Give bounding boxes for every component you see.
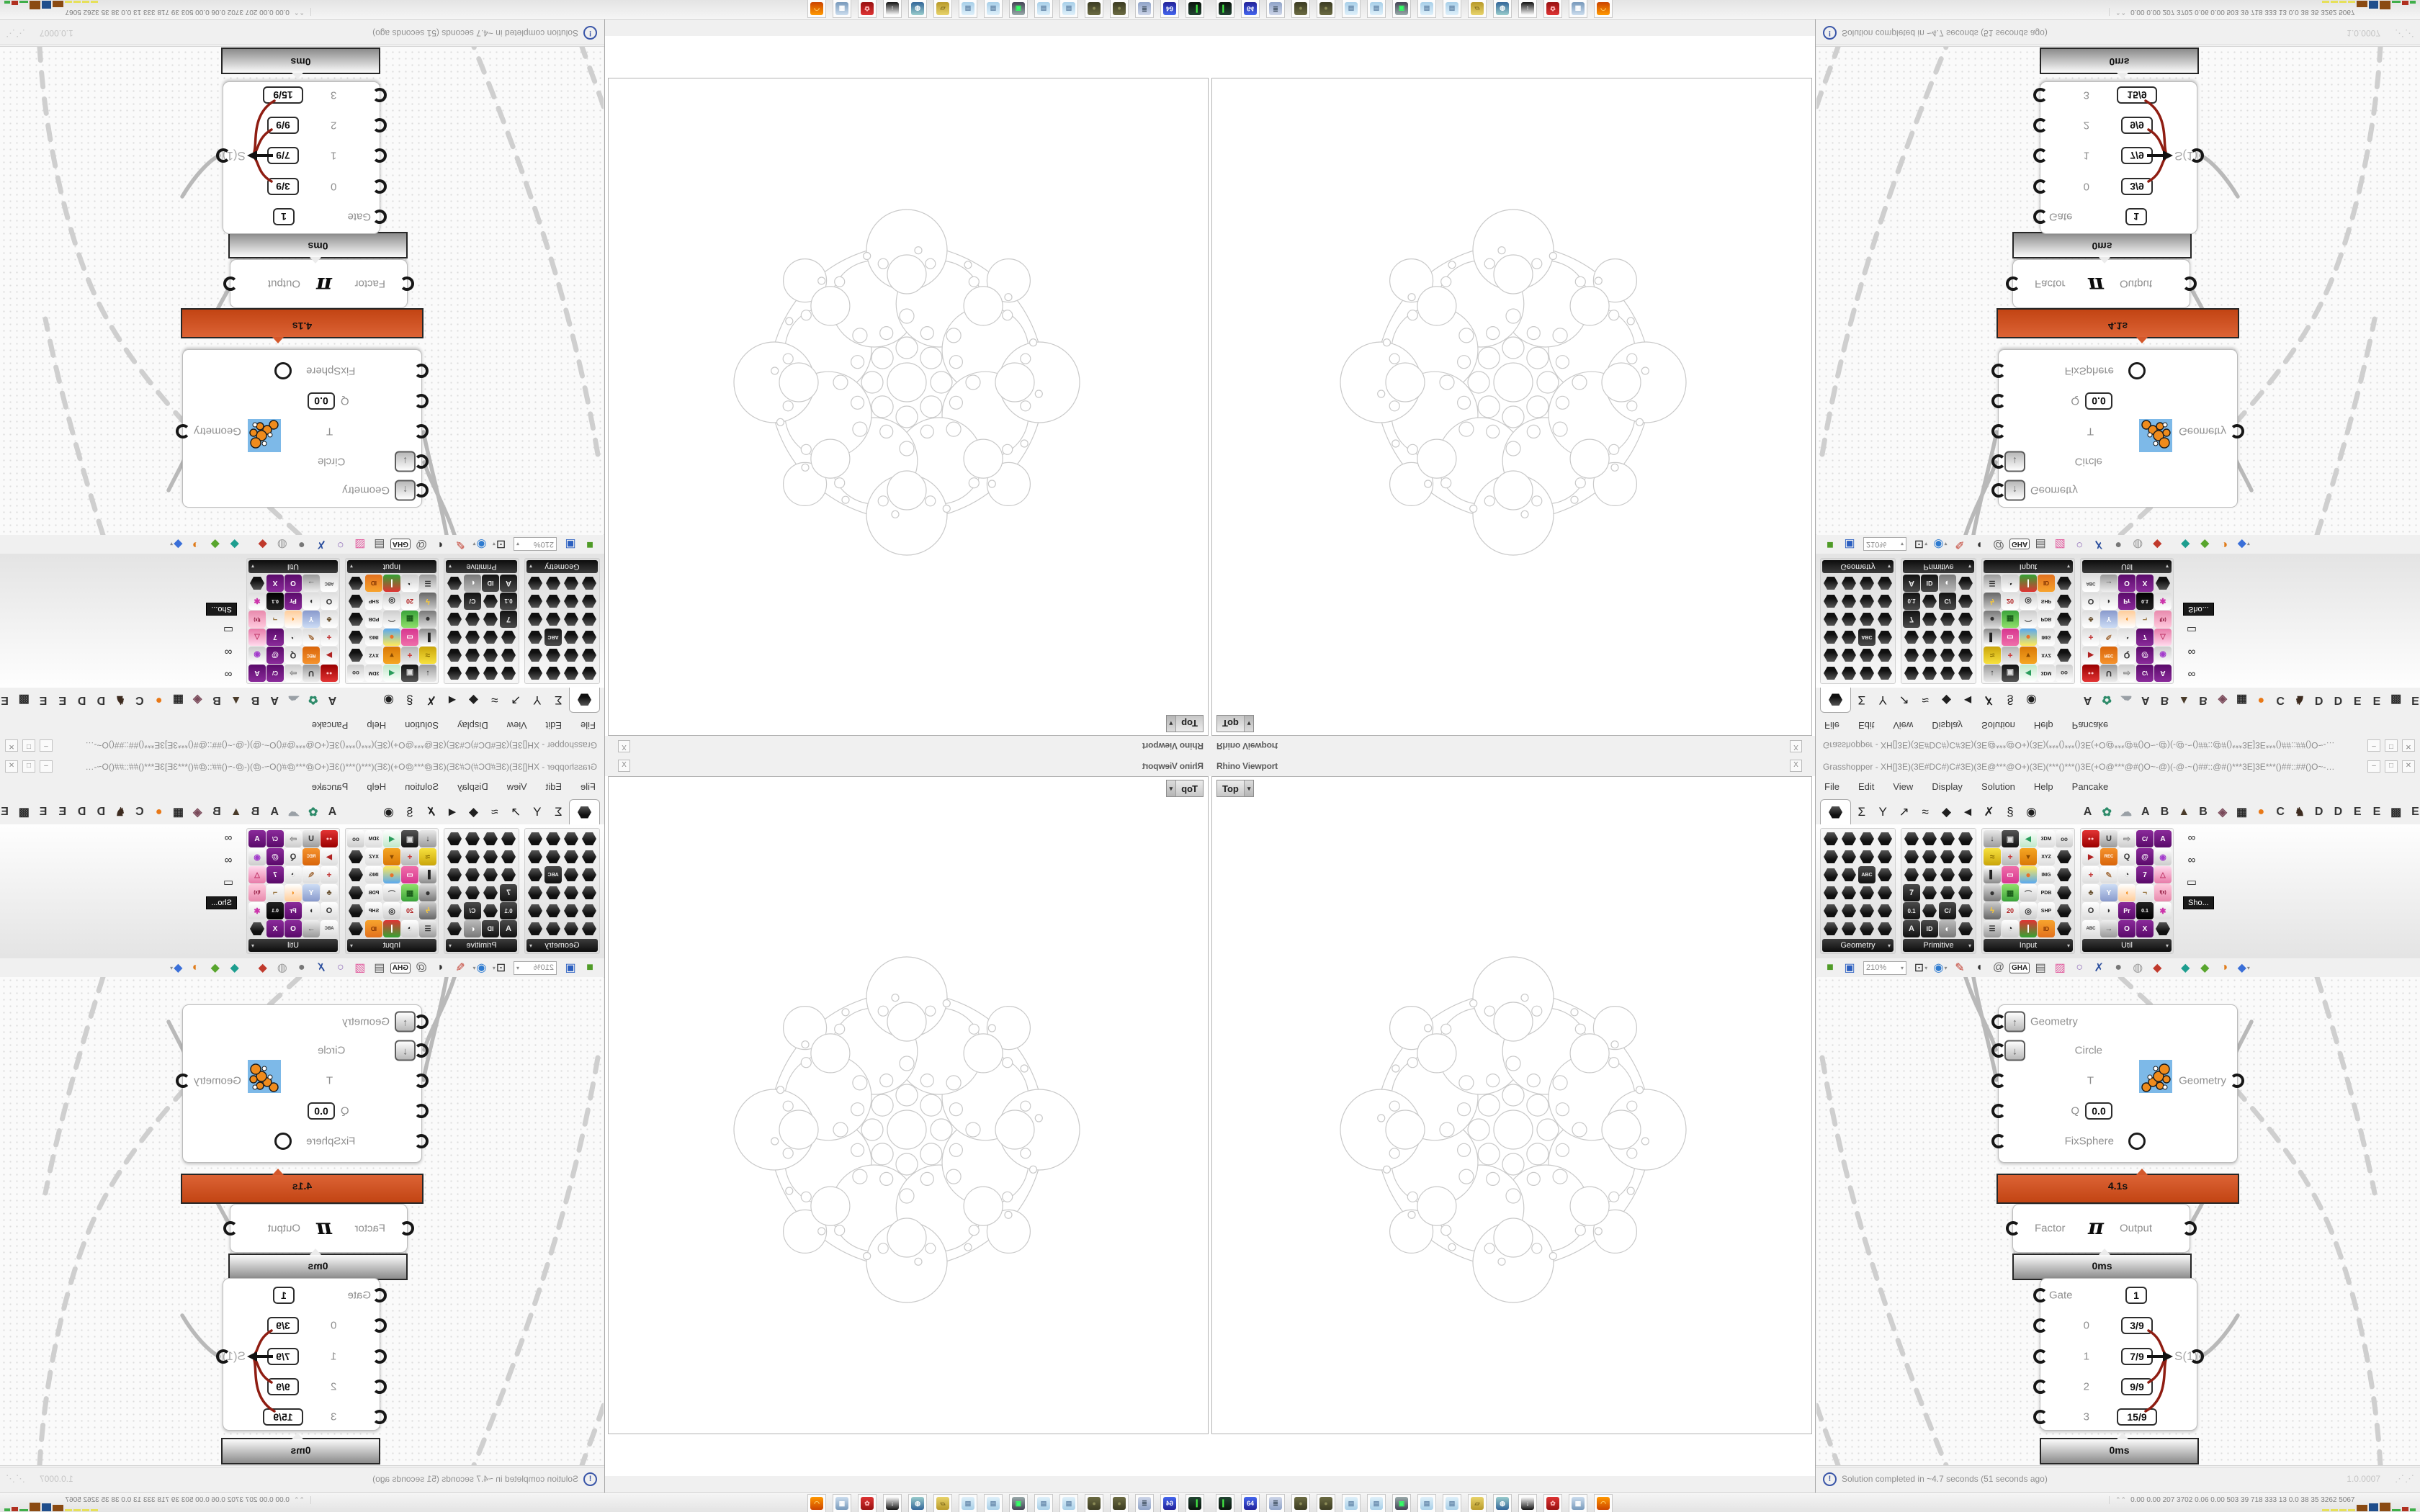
palette-icon[interactable]: + xyxy=(2002,848,2019,865)
palette-icon[interactable] xyxy=(347,611,364,628)
palette-icon[interactable]: ↓ xyxy=(1984,665,2001,682)
tab-plugin-a1[interactable]: A xyxy=(323,688,342,712)
firefox-icon[interactable]: ◠ xyxy=(1594,0,1613,18)
palette-icon[interactable]: ▦ xyxy=(2002,884,2019,901)
palette-icon[interactable]: C/ xyxy=(2136,665,2154,682)
maximize-button[interactable]: □ xyxy=(22,739,35,752)
menu-pancake[interactable]: Pancake xyxy=(2072,781,2109,792)
palette-icon[interactable] xyxy=(482,848,499,865)
palette-icon[interactable] xyxy=(563,611,580,628)
palette-icon[interactable]: △ xyxy=(2154,866,2172,883)
palette-icon[interactable]: U xyxy=(302,665,320,682)
flatten-button[interactable]: ↑ xyxy=(2004,480,2025,501)
tab-vector[interactable]: ↗ xyxy=(506,688,526,712)
zoom-extents-icon[interactable]: ⊡▾ xyxy=(490,960,508,976)
value-box[interactable]: 1 xyxy=(273,208,295,225)
tab-display[interactable]: ◉ xyxy=(378,688,399,712)
palette-group-label[interactable]: Primitive▾ xyxy=(446,939,517,952)
palette-icon[interactable] xyxy=(1858,830,1875,847)
palette-icon[interactable] xyxy=(1822,902,1839,919)
menu-view[interactable]: View xyxy=(507,781,527,792)
tab-plugin-c[interactable]: C xyxy=(2271,688,2290,712)
sphere-icon[interactable]: ● xyxy=(2110,536,2127,552)
palette-icon[interactable]: ● xyxy=(2020,866,2037,883)
palette-icon[interactable]: ◗ xyxy=(2100,593,2117,610)
palette-icon[interactable] xyxy=(1822,593,1839,610)
glasses-icon[interactable]: ∞ xyxy=(220,644,237,660)
save-file-icon[interactable]: ▣ xyxy=(562,536,579,552)
palette-icon[interactable]: 7 xyxy=(500,611,517,628)
graft-button[interactable]: ↓ xyxy=(395,1040,416,1061)
palette-icon[interactable] xyxy=(1822,575,1839,592)
palette-icon[interactable]: A xyxy=(248,830,266,847)
display-half-icon[interactable]: ◑ xyxy=(187,960,205,976)
palette-icon[interactable] xyxy=(482,593,499,610)
input-hook-gate[interactable] xyxy=(372,210,387,224)
sphere-app-icon[interactable]: ● xyxy=(1110,1494,1129,1512)
palette-icon[interactable] xyxy=(1858,665,1875,682)
palette-icon[interactable] xyxy=(1921,629,1938,646)
palette-icon[interactable]: O xyxy=(321,593,338,610)
input-hook-3[interactable] xyxy=(2033,88,2048,102)
palette-icon[interactable]: A xyxy=(500,920,517,937)
palette-icon[interactable] xyxy=(1957,830,1974,847)
palette-icon[interactable]: 0.1 xyxy=(1903,593,1920,610)
input-hook-3[interactable] xyxy=(2033,1410,2048,1424)
palette-icon[interactable]: ▣ xyxy=(401,830,418,847)
palette-icon[interactable] xyxy=(464,866,481,883)
palette-icon[interactable]: ◀ xyxy=(2020,830,2037,847)
palette-icon[interactable]: ABC xyxy=(1858,866,1875,883)
palette-icon[interactable]: ID xyxy=(482,575,499,592)
palette-icon[interactable] xyxy=(482,647,499,664)
palette-group-label[interactable]: Input▾ xyxy=(1984,560,2073,573)
output-hook-output[interactable] xyxy=(2182,276,2197,291)
maximize-button[interactable]: □ xyxy=(2385,760,2398,773)
palette-icon[interactable] xyxy=(1822,866,1839,883)
palette-icon[interactable] xyxy=(1876,665,1894,682)
palette-icon[interactable]: ▭ xyxy=(401,866,418,883)
palette-icon[interactable] xyxy=(347,920,364,937)
scroll-doc-icon[interactable]: ≣ xyxy=(1135,1494,1154,1512)
palette-icon[interactable] xyxy=(1822,647,1839,664)
palette-icon[interactable]: ▾ xyxy=(2020,647,2037,664)
resize-grip[interactable]: ⋰⋰ xyxy=(5,1473,25,1485)
palette-icon[interactable] xyxy=(347,884,364,901)
palette-icon[interactable] xyxy=(2056,611,2073,628)
palette-icon[interactable]: f(x) xyxy=(2154,611,2172,628)
tab-plugin-leaf[interactable]: ✿ xyxy=(2097,688,2117,712)
input-hook-3[interactable] xyxy=(372,88,387,102)
tab-plugin-bird[interactable]: ♞ xyxy=(2290,800,2310,824)
tab-plugin-grid[interactable]: ▦ xyxy=(2232,800,2251,824)
palette-icon[interactable]: ≈ xyxy=(1984,848,2001,865)
tab-plugin-c[interactable]: C xyxy=(130,800,149,824)
palette-icon[interactable]: ◉ xyxy=(2154,848,2172,865)
find-document-icon[interactable]: ▤ xyxy=(371,960,388,976)
palette-icon[interactable]: A xyxy=(248,665,266,682)
palette-icon[interactable] xyxy=(446,575,463,592)
magnet-icon[interactable]: ◖ xyxy=(1971,536,1988,552)
rhino-viewport[interactable]: Top ▾ xyxy=(1211,776,1812,1434)
palette-icon[interactable]: C/ xyxy=(464,593,481,610)
rhino-viewport[interactable]: Top ▾ xyxy=(608,78,1209,736)
tab-plugin-b2[interactable]: B xyxy=(2194,800,2213,824)
tab-plugin-dotgrid[interactable]: ▩ xyxy=(14,800,34,824)
tab-plugin-a1[interactable]: A xyxy=(2078,688,2097,712)
palette-group-label[interactable]: Geometry▾ xyxy=(526,939,598,952)
palette-icon[interactable] xyxy=(1876,848,1894,865)
tab-plugin-grid[interactable]: ▦ xyxy=(169,688,188,712)
sphere-app-icon[interactable]: ● xyxy=(1317,1494,1335,1512)
palette-icon[interactable]: @ xyxy=(266,647,284,664)
gem-green-icon[interactable]: ◆ xyxy=(2196,536,2213,552)
input-hook-q[interactable] xyxy=(414,394,429,408)
tab-plugin-mountain[interactable]: ▲ xyxy=(2174,800,2194,824)
palette-icon[interactable]: ▭ xyxy=(401,629,418,646)
input-hook-fixsphere[interactable] xyxy=(414,364,429,378)
palette-group-label[interactable]: Geometry▾ xyxy=(1822,939,1894,952)
input-hook-factor[interactable] xyxy=(400,1221,414,1236)
palette-icon[interactable]: ◐ xyxy=(1939,920,1956,937)
palette-icon[interactable] xyxy=(482,830,499,847)
palette-icon[interactable]: ◔ xyxy=(284,629,302,646)
palette-group-label[interactable]: Util▾ xyxy=(248,560,338,573)
palette-icon[interactable] xyxy=(1876,629,1894,646)
balloon-icon[interactable]: ○ xyxy=(332,960,349,976)
palette-icon[interactable]: ✱ xyxy=(2154,902,2172,919)
palette-icon[interactable]: ◎ xyxy=(383,593,400,610)
palette-icon[interactable] xyxy=(563,920,580,937)
palette-icon[interactable] xyxy=(544,830,562,847)
tab-sets[interactable]: Y xyxy=(526,800,547,824)
factor-node[interactable]: FactorπOutput xyxy=(230,259,408,308)
palette-icon[interactable]: ⇨ xyxy=(2118,830,2136,847)
palette-icon[interactable] xyxy=(1840,575,1857,592)
palette-icon[interactable]: 0.1 xyxy=(2136,902,2154,919)
palette-icon[interactable]: ⌒ xyxy=(2020,611,2037,628)
notepad-icon[interactable]: ▤ xyxy=(1059,0,1078,18)
palette-icon[interactable] xyxy=(1876,902,1894,919)
notepad-icon[interactable]: ▤ xyxy=(1443,0,1461,18)
rhino-viewport[interactable]: Top ▾ xyxy=(608,776,1209,1434)
palette-icon[interactable] xyxy=(526,665,544,682)
palette-icon[interactable] xyxy=(1921,647,1938,664)
tab-surface[interactable]: ◆ xyxy=(1936,800,1957,824)
tab-plugin-e2[interactable]: E xyxy=(2367,800,2387,824)
console-app-icon[interactable]: ▎ xyxy=(1216,0,1234,18)
palette-icon[interactable] xyxy=(446,830,463,847)
palette-icon[interactable] xyxy=(1957,665,1974,682)
close-icon[interactable]: X xyxy=(618,760,630,772)
palette-icon[interactable] xyxy=(1876,611,1894,628)
factor-node[interactable]: FactorπOutput xyxy=(2012,1204,2190,1253)
tab-intersect[interactable]: ✗ xyxy=(1978,688,1999,712)
tab-intersect[interactable]: ✗ xyxy=(421,800,442,824)
fixsphere-node[interactable]: ↑↓GeometryCircleTQ0.0FixSphereGeometry xyxy=(1998,349,2238,508)
tab-plugin-bird[interactable]: ♞ xyxy=(111,800,130,824)
graft-button[interactable]: ↓ xyxy=(2004,1040,2025,1061)
fixsphere-toggle[interactable] xyxy=(274,362,292,379)
tab-plugin-e2[interactable]: E xyxy=(2367,688,2387,712)
tab-plugin-b1[interactable]: B xyxy=(246,688,265,712)
tab-plugin-dotgrid[interactable]: ▩ xyxy=(2386,688,2406,712)
palette-icon[interactable]: ● xyxy=(1984,611,2001,628)
input-hook-geometry[interactable] xyxy=(414,483,429,498)
palette-icon[interactable]: ID xyxy=(1921,575,1938,592)
tab-plugin-shield[interactable]: ◈ xyxy=(188,688,207,712)
palette-icon[interactable]: ◗ xyxy=(302,593,320,610)
palette-icon[interactable] xyxy=(500,866,517,883)
zoom-level-select[interactable]: 210%▾ xyxy=(514,961,557,975)
value-box[interactable]: 15/9 xyxy=(263,1408,303,1426)
palette-icon[interactable]: f(x) xyxy=(2154,884,2172,901)
palette-icon[interactable] xyxy=(1876,575,1894,592)
palette-icon[interactable] xyxy=(544,575,562,592)
palette-icon[interactable]: + xyxy=(401,647,418,664)
tab-plugin-b2[interactable]: B xyxy=(207,688,227,712)
menu-display[interactable]: Display xyxy=(457,721,488,732)
palette-icon[interactable] xyxy=(500,848,517,865)
tab-plugin-leaf[interactable]: ✿ xyxy=(303,800,323,824)
tab-plugin-orange[interactable]: ● xyxy=(2251,800,2271,824)
palette-icon[interactable]: ◔ xyxy=(284,866,302,883)
palette-icon[interactable]: 7 xyxy=(266,866,284,883)
zoom-extents-icon[interactable]: ⊡▾ xyxy=(490,536,508,552)
palette-icon[interactable]: 20 xyxy=(2002,593,2019,610)
tab-plugin-mountain[interactable]: ▲ xyxy=(2174,688,2194,712)
palette-icon[interactable] xyxy=(1840,593,1857,610)
palette-icon[interactable]: ID xyxy=(2038,920,2055,937)
palette-icon[interactable]: ●● xyxy=(2082,665,2099,682)
palette-icon[interactable] xyxy=(2056,866,2073,883)
palette-icon[interactable]: ♣ xyxy=(2082,884,2099,901)
palette-icon[interactable]: + xyxy=(2082,629,2099,646)
open-file-icon[interactable]: ■ xyxy=(1821,960,1839,976)
palette-icon[interactable]: PDB xyxy=(365,884,382,901)
palette-icon[interactable]: Q xyxy=(284,848,302,865)
palette-group-label[interactable]: Geometry▾ xyxy=(526,560,598,573)
palette-icon[interactable] xyxy=(581,902,598,919)
palette-icon[interactable]: ● xyxy=(419,884,436,901)
value-box[interactable]: 15/9 xyxy=(263,86,303,104)
palette-icon[interactable] xyxy=(446,647,463,664)
palette-icon[interactable] xyxy=(347,902,364,919)
palette-icon[interactable]: ▭ xyxy=(2002,629,2019,646)
preview-eye-icon[interactable]: ◉▾ xyxy=(1932,536,1949,552)
palette-icon[interactable]: → xyxy=(302,575,320,592)
palette-icon[interactable] xyxy=(446,866,463,883)
palette-icon[interactable]: Y xyxy=(302,884,320,901)
palette-icon[interactable]: ▾ xyxy=(383,848,400,865)
folder-icon[interactable]: ▱ xyxy=(933,1494,952,1512)
output-hook-output[interactable] xyxy=(223,276,238,291)
palette-icon[interactable]: 3DM xyxy=(2038,830,2055,847)
palette-icon[interactable] xyxy=(1840,665,1857,682)
palette-icon[interactable] xyxy=(482,902,499,919)
palette-icon[interactable]: ▣ xyxy=(2002,830,2019,847)
palette-icon[interactable]: ◔ xyxy=(401,575,418,592)
palette-icon[interactable] xyxy=(1840,611,1857,628)
tab-plugin-a2[interactable]: A xyxy=(265,800,284,824)
palette-icon[interactable]: ✱ xyxy=(248,593,266,610)
palette-icon[interactable]: 0.1 xyxy=(1903,902,1920,919)
palette-icon[interactable] xyxy=(563,575,580,592)
value-box[interactable]: 9/9 xyxy=(267,117,299,134)
notepad-icon[interactable]: ▤ xyxy=(1342,1494,1361,1512)
value-box[interactable]: 3/9 xyxy=(267,178,299,195)
palette-icon[interactable]: ▌ xyxy=(1984,866,2001,883)
palette-icon[interactable]: + xyxy=(321,629,338,646)
palette-icon[interactable]: O xyxy=(2118,575,2136,592)
palette-icon[interactable]: ▌ xyxy=(1984,629,2001,646)
palette-icon[interactable] xyxy=(446,848,463,865)
palette-icon[interactable]: △ xyxy=(2154,629,2172,646)
palette-icon[interactable]: XYZ xyxy=(365,848,382,865)
palette-icon[interactable] xyxy=(1957,593,1974,610)
palette-icon[interactable]: ID xyxy=(365,920,382,937)
palette-icon[interactable]: Y xyxy=(2100,884,2117,901)
palette-icon[interactable] xyxy=(526,629,544,646)
palette-icon[interactable] xyxy=(1876,830,1894,847)
workstation-icon[interactable]: ▣ xyxy=(1009,1494,1028,1512)
tab-display[interactable]: ◉ xyxy=(2021,800,2042,824)
galapagos-icon[interactable]: ✗ xyxy=(2090,960,2107,976)
value-box[interactable]: 9/9 xyxy=(2121,117,2153,134)
output-hook-geometry[interactable] xyxy=(2230,424,2244,438)
palette-icon[interactable] xyxy=(526,920,544,937)
input-hook-0[interactable] xyxy=(372,179,387,194)
tab-transform[interactable]: § xyxy=(1999,800,2020,824)
tab-plugin-a1[interactable]: A xyxy=(2078,800,2097,824)
wire-sphere-icon[interactable]: ◍ xyxy=(274,536,291,552)
palette-icon[interactable]: ▌ xyxy=(419,866,436,883)
palette-icon[interactable]: ☰ xyxy=(419,920,436,937)
gha-installer-icon[interactable]: GHA xyxy=(2009,960,2030,976)
input-hook-0[interactable] xyxy=(372,1318,387,1333)
tab-plugin-dotgrid[interactable]: ▩ xyxy=(2386,800,2406,824)
palette-icon[interactable] xyxy=(482,866,499,883)
palette-icon[interactable]: Y xyxy=(302,611,320,628)
close-button[interactable]: ✕ xyxy=(5,760,18,773)
gate-node[interactable]: Gate103/917/929/9315/9S(1) xyxy=(223,81,380,234)
palette-icon[interactable]: 0.1 xyxy=(266,593,284,610)
palette-icon[interactable]: → xyxy=(302,920,320,937)
grasshopper-titlebar[interactable]: Grasshopper - XH[]3E)(3E#DC#)C#3E)(3E@**… xyxy=(0,734,604,756)
palette-icon[interactable] xyxy=(347,575,364,592)
palette-icon[interactable] xyxy=(1939,830,1956,847)
notepad-icon[interactable]: ▤ xyxy=(1342,0,1361,18)
zoom-extents-icon[interactable]: ⊡▾ xyxy=(1912,536,1930,552)
palette-icon[interactable]: SHP xyxy=(2038,902,2055,919)
arrow-bw-icon[interactable]: ↓ xyxy=(1518,0,1537,18)
tab-plugin-d1[interactable]: D xyxy=(91,800,111,824)
palette-icon[interactable] xyxy=(2056,884,2073,901)
palette-icon[interactable]: 0.1 xyxy=(500,902,517,919)
value-box[interactable]: 9/9 xyxy=(267,1378,299,1395)
sphere-icon[interactable]: ● xyxy=(2110,960,2127,976)
palette-icon[interactable]: ●● xyxy=(321,665,338,682)
close-button[interactable]: ✕ xyxy=(2402,760,2415,773)
palette-icon[interactable]: Pr xyxy=(2118,593,2136,610)
factor-node[interactable]: FactorπOutput xyxy=(230,1204,408,1253)
gem-teal-icon[interactable]: ◆ xyxy=(2177,536,2194,552)
firefox-icon[interactable]: ◠ xyxy=(807,0,826,18)
palette-icon[interactable]: C/ xyxy=(1939,902,1956,919)
fixsphere-node[interactable]: ↑↓GeometryCircleTQ0.0FixSphereGeometry xyxy=(182,349,422,508)
palette-icon[interactable]: @ xyxy=(2136,647,2154,664)
palette-icon[interactable] xyxy=(581,848,598,865)
palette-icon[interactable]: IMG xyxy=(2038,629,2055,646)
palette-group-label[interactable]: Input▾ xyxy=(347,560,436,573)
palette-icon[interactable] xyxy=(581,884,598,901)
palette-icon[interactable]: → xyxy=(2100,920,2117,937)
menu-display[interactable]: Display xyxy=(1932,781,1963,792)
tab-maths[interactable]: Σ xyxy=(548,688,569,712)
palette-icon[interactable]: XYZ xyxy=(2038,647,2055,664)
palette-icon[interactable]: @ xyxy=(2136,848,2154,865)
palette-icon[interactable]: PDB xyxy=(2038,611,2055,628)
tab-plugin-a2[interactable]: A xyxy=(2136,800,2155,824)
control-panel-icon[interactable]: ◍ xyxy=(908,1494,927,1512)
chevron-down-icon[interactable]: ▾ xyxy=(1244,780,1254,796)
palette-icon[interactable]: ♣ xyxy=(2082,611,2099,628)
palette-icon[interactable]: ▣ xyxy=(2002,665,2019,682)
palette-icon[interactable]: ● xyxy=(383,866,400,883)
magnet-icon[interactable]: ◖ xyxy=(1971,960,1988,976)
workstation-icon[interactable]: ▣ xyxy=(1392,1494,1411,1512)
palette-icon[interactable] xyxy=(446,884,463,901)
tab-plugin-b2[interactable]: B xyxy=(2194,688,2213,712)
calculator-icon[interactable]: ▦ xyxy=(1569,0,1587,18)
tab-plugin-leaf[interactable]: ✿ xyxy=(303,688,323,712)
palette-icon[interactable]: ● xyxy=(1984,884,2001,901)
palette-icon[interactable] xyxy=(2056,647,2073,664)
palette-icon[interactable]: 20 xyxy=(401,902,418,919)
palette-icon[interactable] xyxy=(563,830,580,847)
tab-curve[interactable]: ≈ xyxy=(484,688,505,712)
palette-icon[interactable] xyxy=(544,593,562,610)
tab-plugin-bird[interactable]: ♞ xyxy=(111,688,130,712)
palette-icon[interactable]: 20 xyxy=(2002,902,2019,919)
palette-icon[interactable] xyxy=(563,848,580,865)
menu-display[interactable]: Display xyxy=(1932,721,1963,732)
palette-icon[interactable] xyxy=(526,647,544,664)
palette-icon[interactable]: ≈ xyxy=(1984,647,2001,664)
tab-plugin-e1[interactable]: E xyxy=(53,800,72,824)
palette-icon[interactable] xyxy=(1939,884,1956,901)
palette-icon[interactable]: ▕▏ xyxy=(2020,920,2037,937)
zoom-level-select[interactable]: 210%▾ xyxy=(1863,961,1906,975)
balloon-icon[interactable]: ○ xyxy=(2071,536,2088,552)
gem-blue-icon[interactable]: ◆▾ xyxy=(2235,960,2252,976)
flatten-button[interactable]: ↑ xyxy=(395,480,416,501)
palette-icon[interactable] xyxy=(563,647,580,664)
minimize-button[interactable]: – xyxy=(2367,760,2380,773)
palette-icon[interactable] xyxy=(1840,866,1857,883)
gha-installer-icon[interactable]: GHA xyxy=(390,960,411,976)
gate-node[interactable]: Gate103/917/929/9315/9S(1) xyxy=(223,1278,380,1431)
palette-icon[interactable]: ≈ xyxy=(419,848,436,865)
fixsphere-toggle[interactable] xyxy=(274,1133,292,1150)
tab-intersect[interactable]: ✗ xyxy=(421,688,442,712)
palette-icon[interactable]: ♣ xyxy=(321,611,338,628)
input-hook-t[interactable] xyxy=(1991,1074,2006,1088)
input-hook-q[interactable] xyxy=(414,1104,429,1118)
gem-green-icon[interactable]: ◆ xyxy=(207,960,224,976)
folder-icon[interactable]: ▱ xyxy=(1468,1494,1487,1512)
palette-icon[interactable]: Q xyxy=(2118,848,2136,865)
